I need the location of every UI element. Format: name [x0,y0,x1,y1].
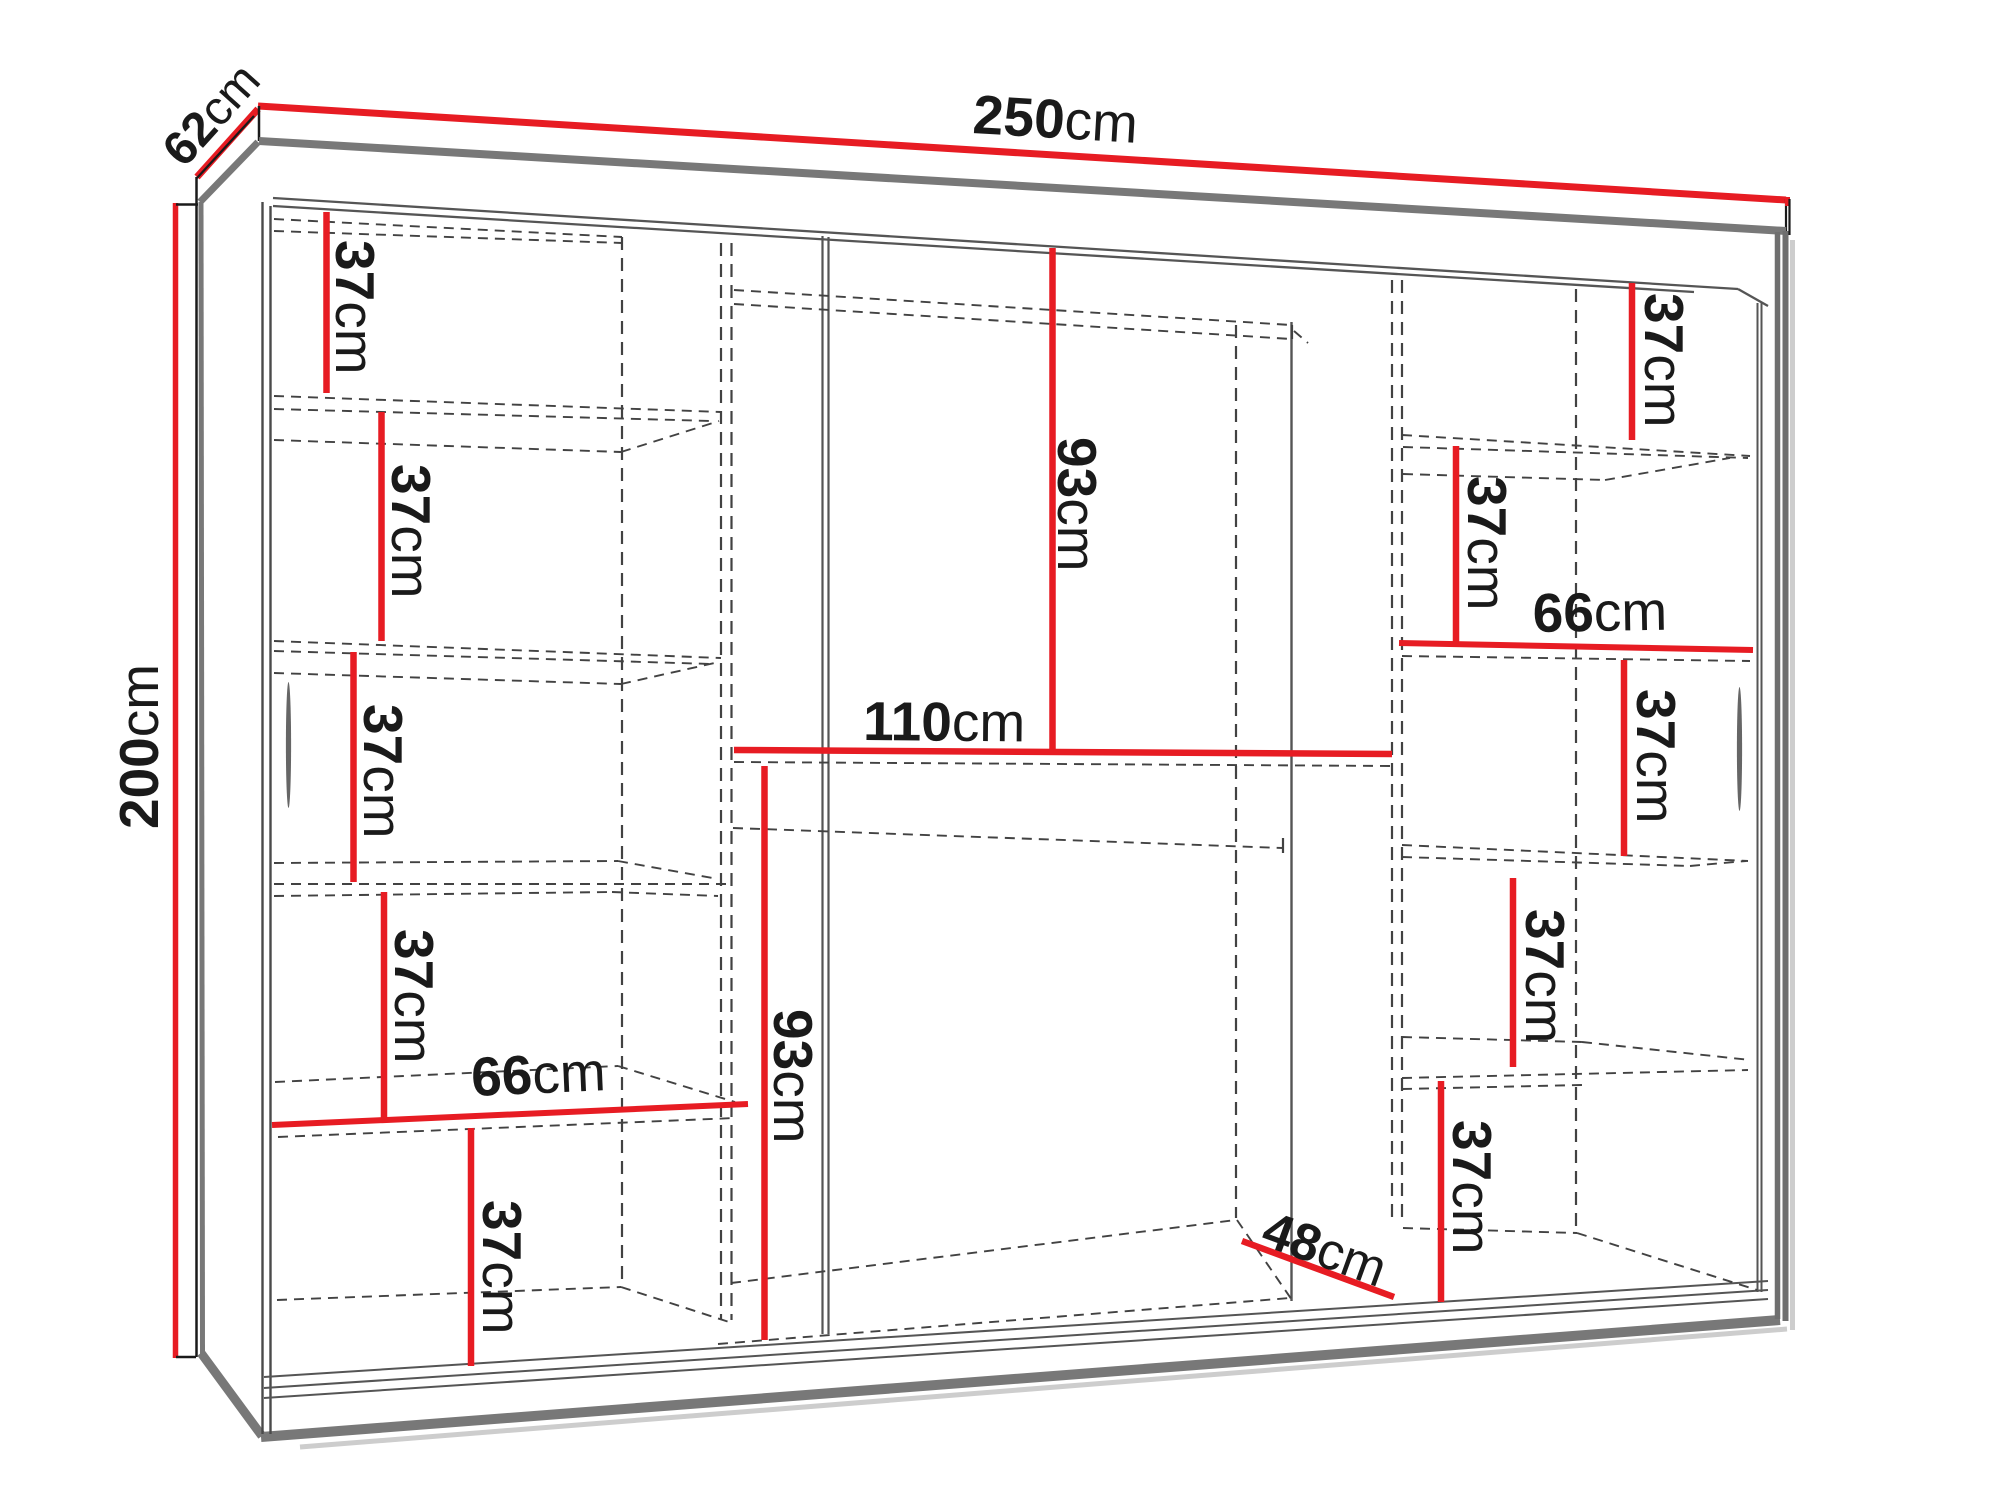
svg-text:37cm: 37cm [1441,1120,1503,1255]
svg-text:110cm: 110cm [863,690,1026,753]
svg-text:37cm: 37cm [380,464,442,599]
svg-text:37cm: 37cm [471,1200,533,1335]
svg-text:37cm: 37cm [1514,909,1576,1044]
svg-text:93cm: 93cm [1046,437,1108,572]
svg-text:37cm: 37cm [383,929,445,1064]
svg-text:37cm: 37cm [1456,476,1518,611]
svg-text:66cm: 66cm [470,1040,607,1108]
svg-text:37cm: 37cm [1625,689,1687,824]
svg-text:250cm: 250cm [971,83,1139,155]
svg-text:200cm: 200cm [108,664,170,829]
svg-text:37cm: 37cm [1633,293,1695,428]
svg-text:66cm: 66cm [1532,580,1668,644]
svg-text:37cm: 37cm [324,240,386,375]
svg-text:37cm: 37cm [352,704,414,839]
svg-text:93cm: 93cm [762,1009,824,1144]
